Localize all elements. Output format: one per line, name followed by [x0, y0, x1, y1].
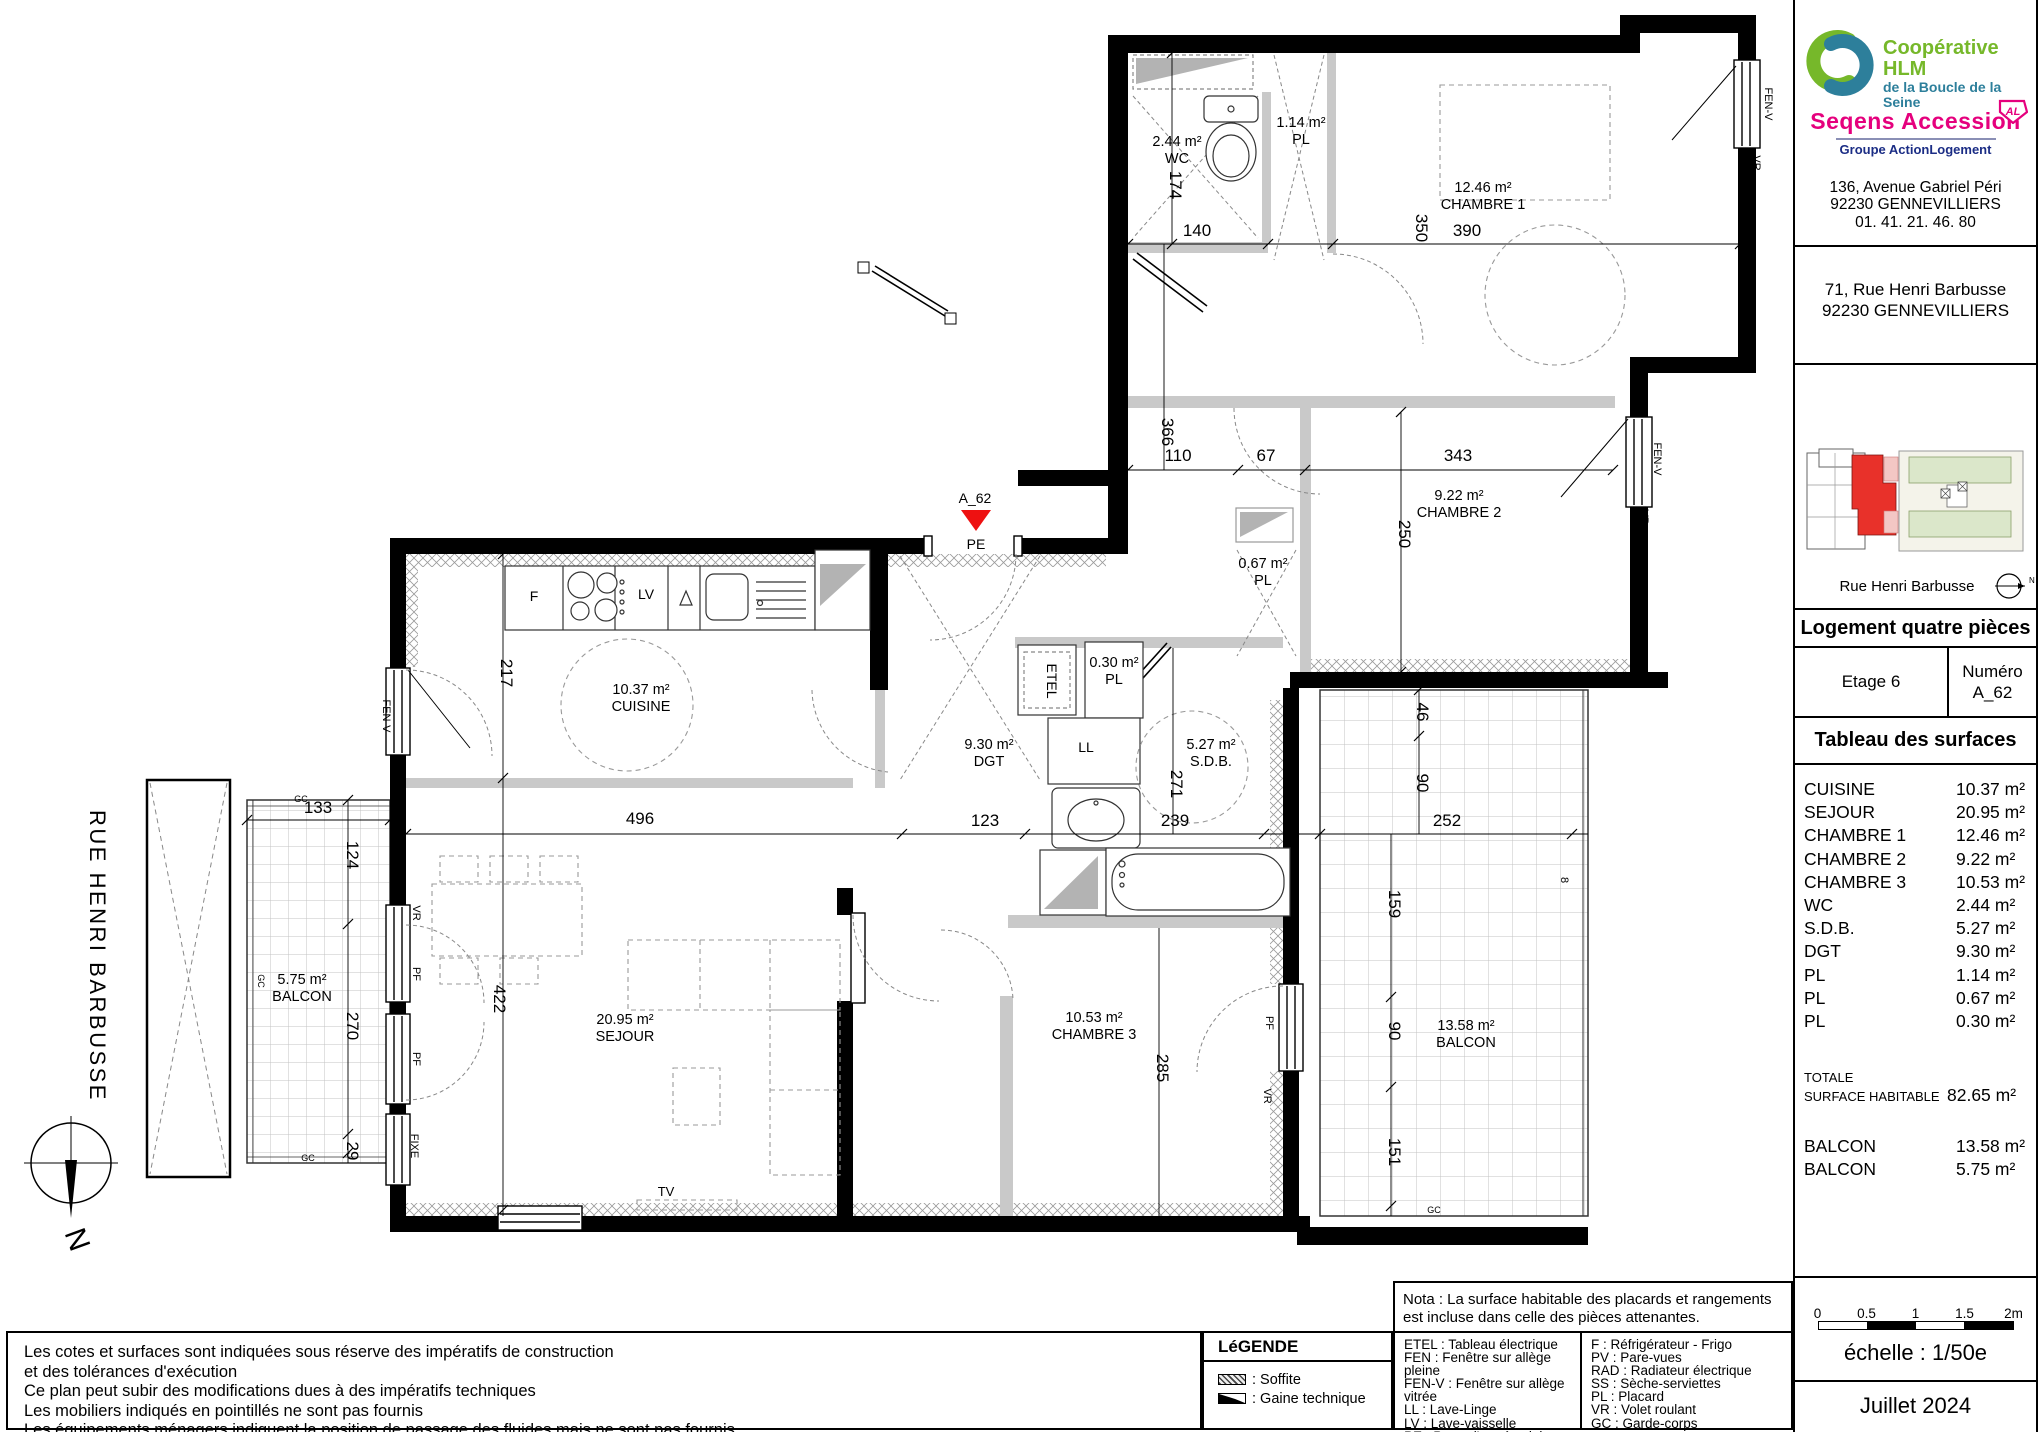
- note-line: Ce plan peut subir des modifications due…: [24, 1382, 1200, 1402]
- dimension-label: 350: [1412, 214, 1431, 242]
- annotation-label: LL: [1078, 739, 1094, 755]
- legend-title: LéGENDE: [1204, 1333, 1391, 1362]
- total-label-2: SURFACE HABITABLE: [1795, 1089, 1947, 1104]
- washbasin-icon: [1052, 788, 1140, 848]
- legend-item-label: : Gaine technique: [1252, 1391, 1366, 1407]
- cooperative-hlm-logo-icon: [1801, 28, 1879, 98]
- legend-box: LéGENDE : Soffite: Gaine technique: [1202, 1331, 1393, 1430]
- dimension-label: 270: [343, 1012, 362, 1040]
- room-area: 9.30 m²: [1956, 941, 2036, 964]
- note-line: et des tolérances d'exécution: [24, 1363, 1200, 1383]
- entry-door-label: PE: [967, 536, 986, 552]
- project-address-line: 71, Rue Henri Barbusse: [1795, 279, 2036, 300]
- balcony-area: 5.75 m²: [1956, 1159, 2036, 1182]
- coop-address-line: 136, Avenue Gabriel Péri: [1795, 180, 2036, 196]
- annotation-label: PF: [1263, 1016, 1275, 1030]
- entry-marker-triangle: [961, 510, 991, 531]
- dimension-label: 110: [1164, 446, 1191, 465]
- room-area-label: 5.75 m²: [277, 972, 326, 988]
- dimension-label: 285: [1153, 1054, 1172, 1082]
- notes-box: Les cotes et surfaces sont indiquées sou…: [6, 1331, 1202, 1430]
- room-name-label: CHAMBRE 1: [1441, 197, 1526, 213]
- dimension-label: 46: [1413, 703, 1432, 722]
- key-plan-compass-icon: N: [1995, 574, 2035, 598]
- annotation-label: GC: [301, 1153, 315, 1163]
- al-badge-icon: AL: [1998, 98, 2028, 124]
- annotation-label: GC: [256, 974, 266, 988]
- balcony-13-58: [1297, 690, 1588, 1245]
- dimension-label: 67: [1257, 446, 1276, 465]
- room-name-label: PL: [1105, 672, 1123, 688]
- room-area-label: 10.37 m²: [612, 682, 669, 698]
- room-area: 2.44 m²: [1956, 895, 2036, 918]
- scale-tick: 2m: [2004, 1306, 2023, 1321]
- room-name: WC: [1795, 895, 1956, 918]
- table-row: PL0.67 m²: [1795, 988, 2036, 1011]
- gaine-swatch-icon: [1218, 1393, 1246, 1404]
- abbreviation-line: LV : Lave-vaisselle: [1404, 1417, 1580, 1430]
- annotation-label: VR: [410, 905, 422, 920]
- total-value: 82.65 m²: [1947, 1085, 2016, 1106]
- room-name-label: CUISINE: [612, 699, 671, 715]
- scale-section: 00.511.52m échelle : 1/50e: [1795, 1278, 2036, 1382]
- annotation-label: FEN-V: [380, 700, 392, 734]
- abbreviation-line: FEN : Fenêtre sur allège pleine: [1404, 1351, 1580, 1377]
- entry-unit-label: A_62: [959, 490, 992, 506]
- room-name-label: CHAMBRE 3: [1052, 1027, 1137, 1043]
- dimension-label: 124: [343, 841, 362, 869]
- room-area-label: 10.53 m²: [1065, 1010, 1122, 1026]
- room-name-label: SEJOUR: [596, 1029, 655, 1045]
- dimension-label: 159: [1385, 890, 1404, 918]
- key-plan-street-label: Rue Henri Barbusse: [1839, 578, 1974, 595]
- room-name: CUISINE: [1795, 779, 1956, 802]
- balcony-row: BALCON5.75 m²: [1795, 1159, 2036, 1182]
- sofa: [628, 940, 840, 1010]
- total-surface-block: TOTALE SURFACE HABITABLE 82.65 m²: [1795, 1070, 2036, 1106]
- floor-plan-sheet: 2.44 m²WC1.14 m²PL12.46 m²CHAMBRE 19.22 …: [0, 0, 2040, 1432]
- floor-number-section: Etage 6 Numéro A_62: [1795, 648, 2036, 718]
- surface-table-title-section: Tableau des surfaces: [1795, 718, 2036, 765]
- dimension-label: 133: [304, 798, 332, 817]
- note-line: Les équipements ménagers indiquent la po…: [24, 1421, 1200, 1432]
- dimension-label: 140: [1183, 221, 1211, 240]
- room-area-label: 0.30 m²: [1089, 655, 1138, 671]
- table-row: CUISINE10.37 m²: [1795, 779, 2036, 802]
- annotation-label: F: [530, 588, 539, 604]
- abbreviations-right-column: F : Réfrigérateur - FrigoPV : Pare-vuesR…: [1582, 1333, 1791, 1428]
- seqens-subtitle: Groupe ActionLogement: [1795, 142, 2036, 157]
- room-name-label: CHAMBRE 2: [1417, 505, 1502, 521]
- table-row: CHAMBRE 112.46 m²: [1795, 825, 2036, 848]
- room-area-label: 9.22 m²: [1434, 488, 1483, 504]
- annotation-label: PF: [410, 1052, 422, 1066]
- room-area: 5.27 m²: [1956, 918, 2036, 941]
- scale-ticks: 00.511.52m: [1818, 1306, 2014, 1321]
- table-row: PL0.30 m²: [1795, 1011, 2036, 1034]
- room-name: DGT: [1795, 941, 1956, 964]
- numero-value: A_62: [1973, 682, 2013, 703]
- room-area-label: 13.58 m²: [1437, 1018, 1494, 1034]
- room-area-label: 2.44 m²: [1152, 134, 1201, 150]
- dimension-label: 250: [1395, 520, 1414, 548]
- room-name: CHAMBRE 1: [1795, 825, 1956, 848]
- north-compass: [24, 1116, 118, 1218]
- unit-type-title: Logement quatre pièces: [1800, 617, 2030, 640]
- table-row: WC2.44 m²: [1795, 895, 2036, 918]
- room-area-label: 0.67 m²: [1238, 556, 1287, 572]
- dimension-label: 422: [490, 985, 509, 1013]
- room-area-label: 1.14 m²: [1276, 115, 1325, 131]
- soffite-swatch-icon: [1218, 1374, 1246, 1385]
- abbreviations-box: ETEL : Tableau électriqueFEN : Fenêtre s…: [1393, 1331, 1793, 1430]
- svg-text:AL: AL: [2005, 106, 2021, 118]
- room-area: 12.46 m²: [1956, 825, 2036, 848]
- numero-label: Numéro: [1962, 661, 2022, 682]
- scale-bar: [1818, 1321, 2014, 1330]
- room-area-label: 5.27 m²: [1186, 737, 1235, 753]
- balcony-name: BALCON: [1795, 1159, 1956, 1182]
- annotation-label: LV: [638, 586, 655, 602]
- dimension-label: 239: [1161, 811, 1189, 830]
- room-name: S.D.B.: [1795, 918, 1956, 941]
- numero-cell: Numéro A_62: [1949, 648, 2036, 716]
- scale-tick: 0: [1814, 1306, 1822, 1321]
- dimension-label: 8: [1558, 877, 1570, 883]
- room-area: 1.14 m²: [1956, 965, 2036, 988]
- balcony-row: BALCON13.58 m²: [1795, 1136, 2036, 1159]
- key-plan-drawing: Rue Henri Barbusse N: [1795, 365, 2040, 608]
- room-name-label: PL: [1292, 132, 1310, 148]
- dimension-label: 151: [1385, 1138, 1404, 1166]
- key-plan-section: Rue Henri Barbusse N: [1795, 365, 2036, 610]
- room-name-label: BALCON: [1436, 1035, 1496, 1051]
- chambre1-furniture: [1485, 225, 1625, 365]
- room-area-label: 20.95 m²: [596, 1012, 653, 1028]
- project-address: 71, Rue Henri Barbusse92230 GENNEVILLIER…: [1795, 247, 2036, 322]
- table-row: S.D.B.5.27 m²: [1795, 918, 2036, 941]
- privacy-screen-strip: [147, 780, 230, 1177]
- table-row: CHAMBRE 29.22 m²: [1795, 849, 2036, 872]
- table-row: CHAMBRE 310.53 m²: [1795, 872, 2036, 895]
- scale-tick: 0.5: [1857, 1306, 1876, 1321]
- nota-box: Nota : La surface habitable des placards…: [1393, 1281, 1793, 1333]
- coffee-table: [673, 1068, 720, 1125]
- coop-logo-line1: Coopérative HLM: [1883, 38, 2033, 80]
- annotation-label: VR: [1261, 1088, 1273, 1103]
- legend-item: : Gaine technique: [1218, 1389, 1391, 1408]
- annotation-label: ETEL: [1044, 663, 1060, 698]
- note-line: Les cotes et surfaces sont indiquées sou…: [24, 1343, 1200, 1363]
- room-area: 10.53 m²: [1956, 872, 2036, 895]
- legend-items: : Soffite: Gaine technique: [1204, 1362, 1391, 1408]
- surface-table-section: CUISINE10.37 m²SEJOUR20.95 m²CHAMBRE 112…: [1795, 765, 2036, 1278]
- room-name: CHAMBRE 3: [1795, 872, 1956, 895]
- scale-tick: 1: [1912, 1306, 1920, 1321]
- dimension-label: 29: [343, 1142, 362, 1161]
- dimension-label: 174: [1166, 171, 1185, 199]
- room-area-label: 9.30 m²: [964, 737, 1013, 753]
- surface-table-rows: CUISINE10.37 m²SEJOUR20.95 m²CHAMBRE 112…: [1795, 765, 2036, 1034]
- floor-plan-drawing: 2.44 m²WC1.14 m²PL12.46 m²CHAMBRE 19.22 …: [0, 0, 2040, 1432]
- logos-section: Coopérative HLM de la Boucle de la Seine…: [1795, 0, 2036, 247]
- dimension-label: 90: [1413, 774, 1432, 793]
- room-name: PL: [1795, 965, 1956, 988]
- dimension-label: 366: [1158, 418, 1177, 446]
- bathtub-icon: [1106, 848, 1290, 916]
- room-name-label: S.D.B.: [1190, 754, 1232, 770]
- note-line: Les mobiliers indiqués en pointillés ne …: [24, 1402, 1200, 1422]
- room-area: 0.67 m²: [1956, 988, 2036, 1011]
- toilet-icon: [1204, 96, 1258, 181]
- dimension-label: 390: [1453, 221, 1481, 240]
- room-name-label: PL: [1254, 573, 1272, 589]
- scale-tick: 1.5: [1955, 1306, 1974, 1321]
- dimension-label: 123: [971, 811, 999, 830]
- room-area: 0.30 m²: [1956, 1011, 2036, 1034]
- balcony-rows: BALCON13.58 m²BALCON5.75 m²: [1795, 1136, 2036, 1182]
- annotation-label: PF: [410, 967, 422, 981]
- scale-label: échelle : 1/50e: [1818, 1340, 2014, 1366]
- dimension-label: 90: [1385, 1022, 1404, 1041]
- room-name: PL: [1795, 1011, 1956, 1034]
- room-name-label: WC: [1165, 151, 1189, 167]
- dimension-label: 271: [1167, 770, 1186, 798]
- annotation-label: VR: [1638, 509, 1650, 524]
- legend-item: : Soffite: [1218, 1370, 1391, 1389]
- seqens-logo: Seqens Accession: [1810, 108, 2020, 134]
- date-section: Juillet 2024: [1795, 1382, 2036, 1430]
- dimension-label: 496: [626, 809, 654, 828]
- dining-table: [432, 884, 582, 956]
- annotation-label: GC: [1427, 1205, 1441, 1215]
- room-name: PL: [1795, 988, 1956, 1011]
- dimension-label: 343: [1444, 446, 1472, 465]
- abbreviation-line: VR : Volet roulant: [1591, 1403, 1791, 1416]
- annotation-label: FEN-V: [1651, 443, 1663, 477]
- abbreviations-left-column: ETEL : Tableau électriqueFEN : Fenêtre s…: [1395, 1333, 1582, 1428]
- coop-address: 136, Avenue Gabriel Péri92230 GENNEVILLI…: [1795, 180, 2036, 232]
- room-area: 9.22 m²: [1956, 849, 2036, 872]
- coop-address-line: 01. 41. 21. 46. 80: [1795, 215, 2036, 231]
- svg-text:N: N: [2029, 576, 2035, 585]
- room-name-label: BALCON: [272, 989, 332, 1005]
- abbreviation-line: GC : Garde-corps: [1591, 1417, 1791, 1430]
- dimension-label: 217: [497, 659, 516, 687]
- annotation-label: FEN-V: [1762, 88, 1774, 122]
- room-area-label: 12.46 m²: [1454, 180, 1511, 196]
- coop-address-line: 92230 GENNEVILLIERS: [1795, 197, 2036, 213]
- room-name: CHAMBRE 2: [1795, 849, 1956, 872]
- annotation-label: GC: [294, 794, 308, 804]
- project-address-section: 71, Rue Henri Barbusse92230 GENNEVILLIER…: [1795, 247, 2036, 365]
- dimension-label: 252: [1433, 811, 1461, 830]
- ll-box: [1048, 718, 1140, 784]
- title-block-sidebar: Coopérative HLM de la Boucle de la Seine…: [1793, 0, 2038, 1432]
- annotation-label: VR: [1750, 155, 1762, 170]
- north-label: N: [58, 1224, 96, 1256]
- date-label: Juillet 2024: [1860, 1393, 1971, 1419]
- table-row: DGT9.30 m²: [1795, 941, 2036, 964]
- table-row: PL1.14 m²: [1795, 965, 2036, 988]
- table-row: SEJOUR20.95 m²: [1795, 802, 2036, 825]
- balcony-name: BALCON: [1795, 1136, 1956, 1159]
- balcony-area: 13.58 m²: [1956, 1136, 2036, 1159]
- surface-table-title: Tableau des surfaces: [1815, 729, 2017, 752]
- room-name: SEJOUR: [1795, 802, 1956, 825]
- room-area: 10.37 m²: [1956, 779, 2036, 802]
- shower-icon: [1040, 850, 1106, 915]
- total-label-1: TOTALE: [1795, 1070, 2036, 1085]
- annotation-label: FIXE: [408, 1134, 420, 1158]
- floor-cell: Etage 6: [1795, 648, 1949, 716]
- unit-type-section: Logement quatre pièces: [1795, 610, 2036, 648]
- legend-item-label: : Soffite: [1252, 1372, 1301, 1388]
- street-name-label: RUE HENRI BARBUSSE: [85, 810, 110, 1102]
- project-address-line: 92230 GENNEVILLIERS: [1795, 300, 2036, 321]
- abbreviation-line: LL : Lave-Linge: [1404, 1403, 1580, 1416]
- abbreviation-line: FEN-V : Fenêtre sur allège vitrée: [1404, 1377, 1580, 1403]
- room-name-label: DGT: [974, 754, 1005, 770]
- annotation-label: TV: [658, 1184, 675, 1199]
- room-area: 20.95 m²: [1956, 802, 2036, 825]
